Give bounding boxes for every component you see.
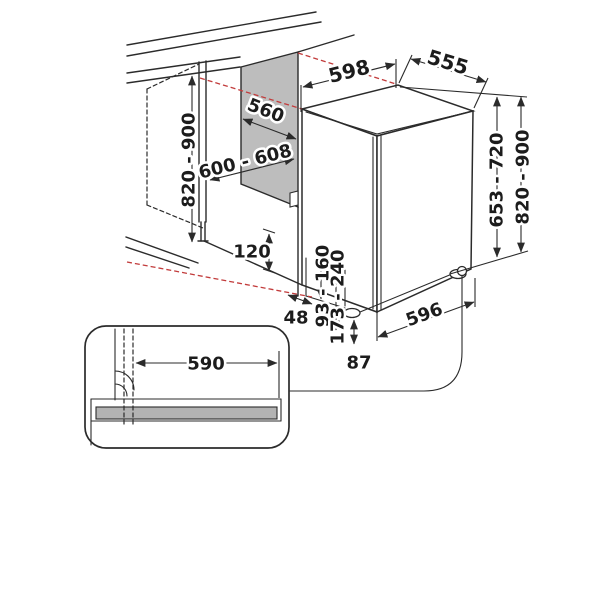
dishwasher-side-face <box>377 111 473 312</box>
dimension-label-top-depth: 555 <box>424 45 471 80</box>
dimension-plinth-max: 173 - 240 <box>327 249 348 344</box>
detail-inset: 590 <box>85 326 289 448</box>
tick-mark <box>263 229 275 233</box>
counter-underside-line <box>127 67 240 83</box>
dimension-label-appliance-height-right: 820 - 900 <box>512 129 533 224</box>
installation-diagram: 598 555 560 600 - 608 820 - 900 120 48 9… <box>0 0 600 600</box>
dimension-label-toe-recess: 120 <box>233 241 271 262</box>
counter-edge-line <box>127 22 321 56</box>
dimension-niche-height-left: 820 - 900 <box>178 76 199 242</box>
dimension-label-foot-height: 87 <box>346 352 371 373</box>
dimension-appliance-height-right: 820 - 900 <box>512 97 533 252</box>
dimension-label-plinth-max: 173 - 240 <box>327 249 348 344</box>
dimension-label-door-height: 653 - 720 <box>486 132 507 227</box>
wall-hidden-edge <box>147 64 199 89</box>
dimension-foot-height: 87 <box>346 320 371 373</box>
dimension-label-base-depth: 596 <box>403 299 445 332</box>
plinth-board-strip <box>96 407 277 419</box>
counter-underside-line <box>127 57 240 73</box>
dimension-label-niche-height-left: 820 - 900 <box>178 112 199 207</box>
dimension-label-plinth-board-width: 590 <box>187 353 225 374</box>
installation-diagram-page: 598 555 560 600 - 608 820 - 900 120 48 9… <box>0 0 600 600</box>
dimension-label-niche-top-width: 598 <box>326 55 372 88</box>
dimension-toe-recess: 120 <box>233 229 275 273</box>
extension-line <box>399 55 412 83</box>
projection-line <box>127 262 312 297</box>
panel-hinge-notch <box>290 191 298 207</box>
counter-underside-line <box>298 35 354 52</box>
dimension-label-side-gap: 48 <box>283 307 308 328</box>
dimension-side-gap: 48 <box>283 295 312 328</box>
floor-edge <box>126 247 189 268</box>
detail-inset-frame <box>85 326 289 448</box>
